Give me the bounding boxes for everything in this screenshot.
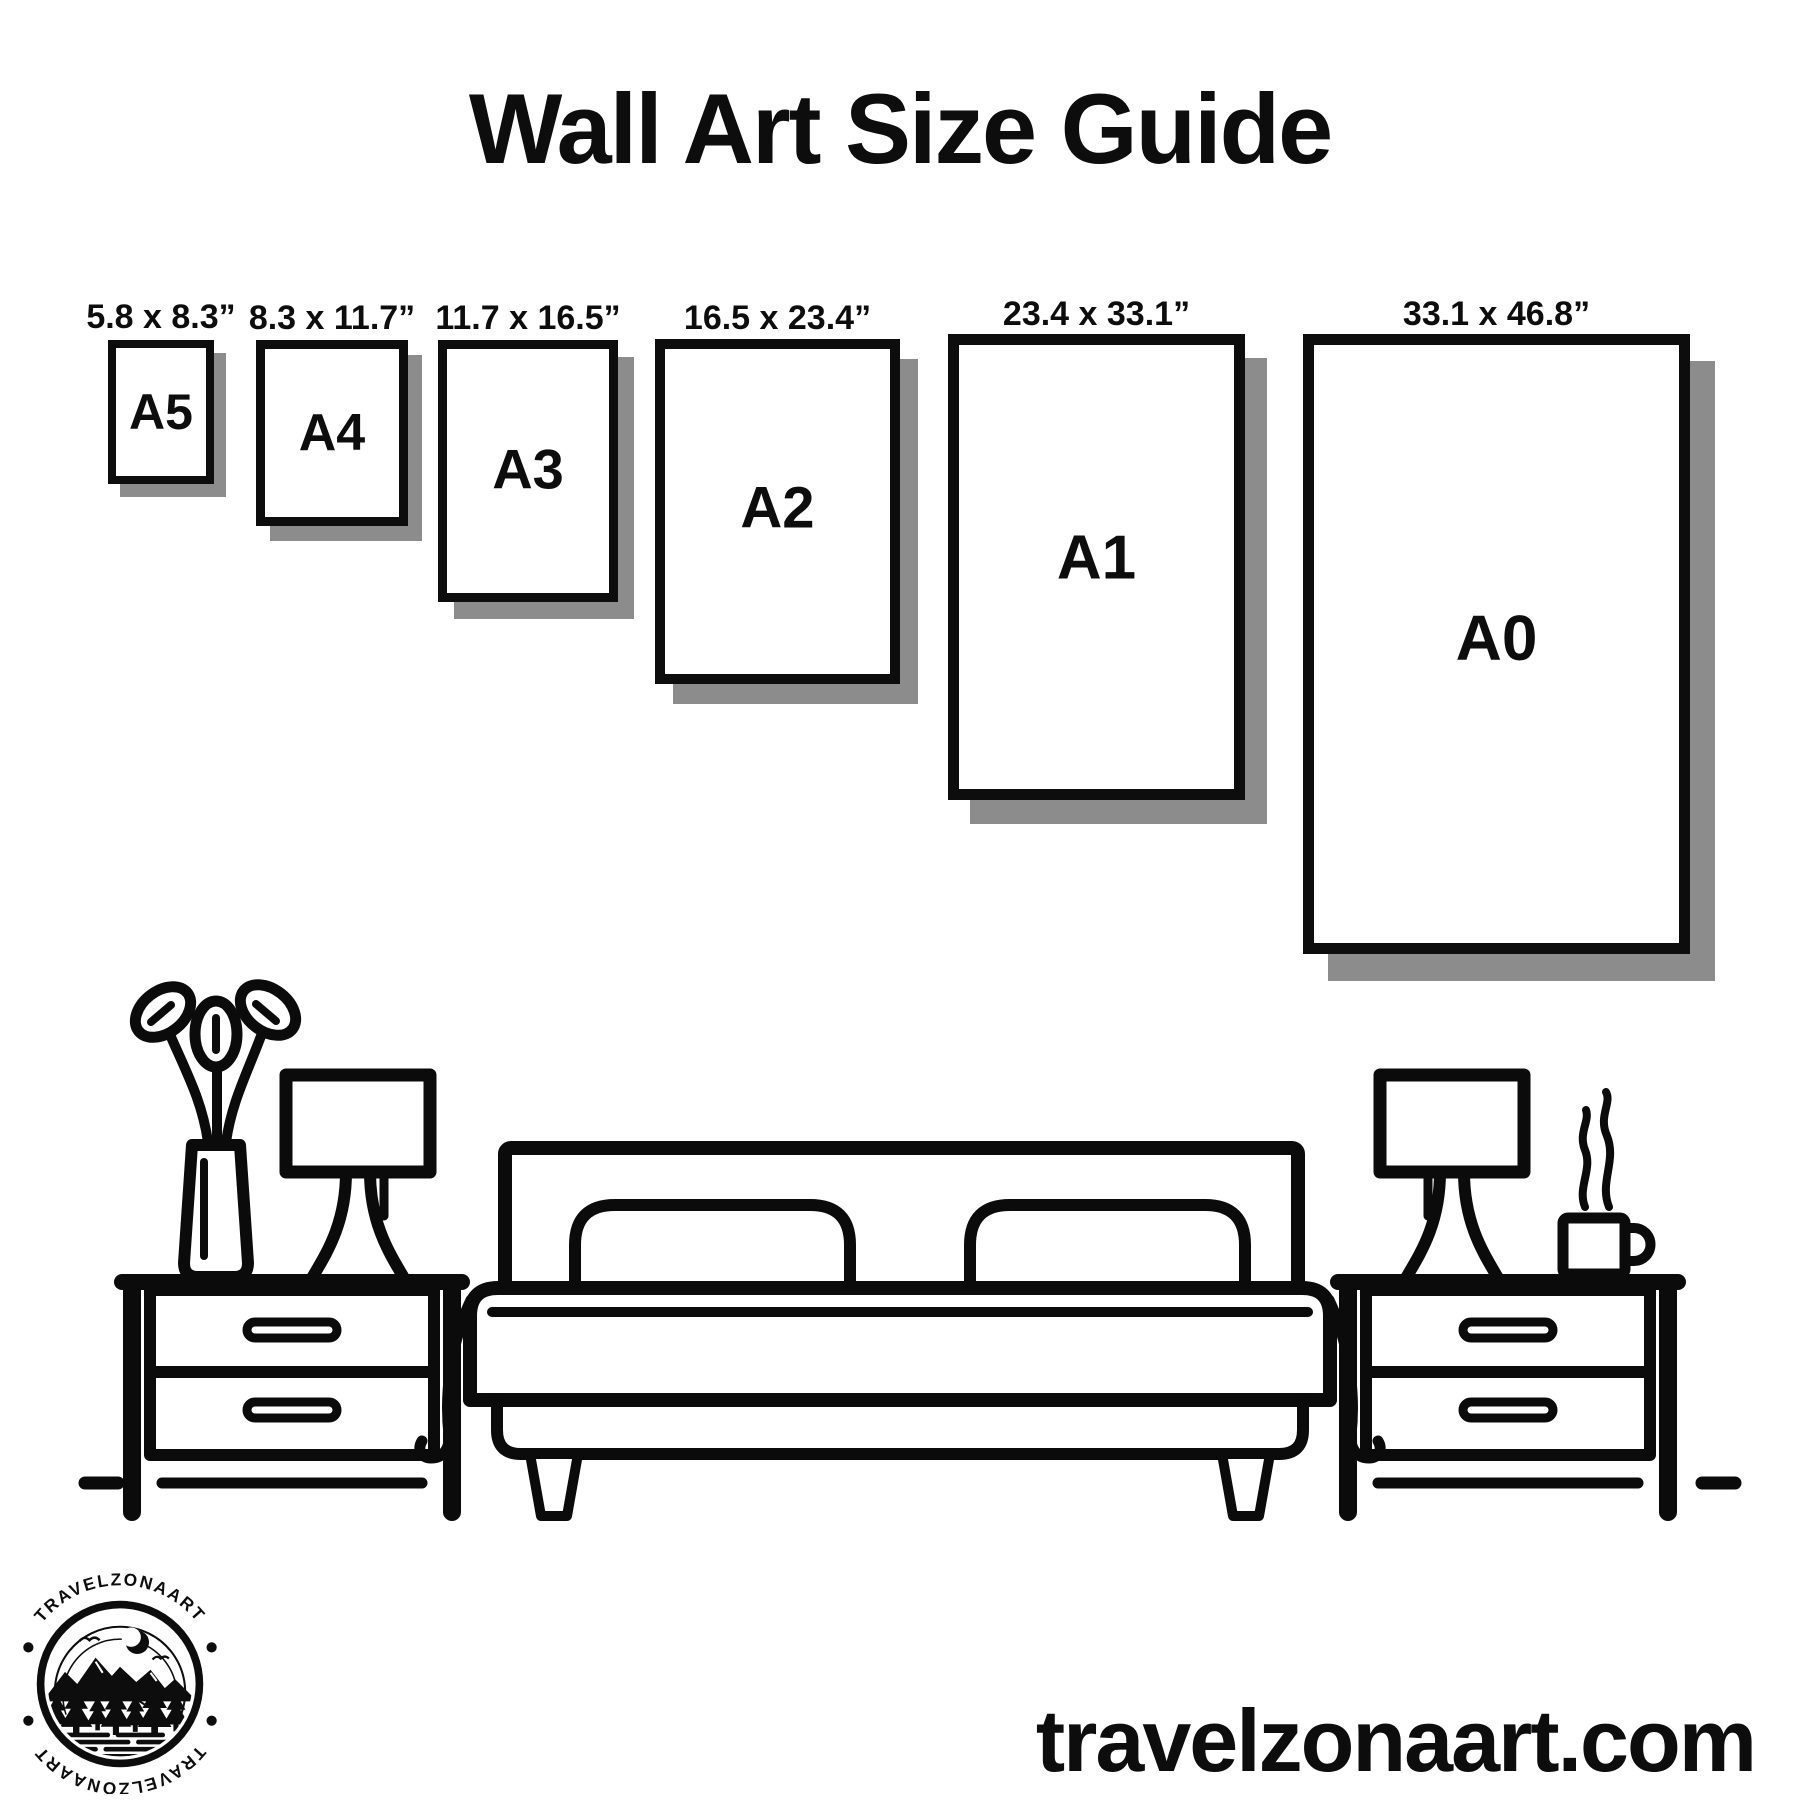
size-dimensions-label: 23.4 x 33.1”: [1003, 295, 1190, 334]
mug-body: [1563, 1218, 1625, 1274]
size-frame-a3: 11.7 x 16.5” A3: [438, 340, 618, 602]
size-dimensions-label: 16.5 x 23.4”: [684, 299, 871, 338]
nightstand-icon: [1338, 1282, 1678, 1512]
size-dimensions-label: 5.8 x 8.3”: [86, 298, 235, 337]
size-dimensions-label: 33.1 x 46.8”: [1403, 295, 1590, 334]
coffee-mug-icon: [1540, 1092, 1662, 1284]
steam-icon: [1583, 1110, 1588, 1207]
bed-leg: [1222, 1454, 1270, 1516]
table-lamp-icon: [286, 1075, 430, 1278]
size-frame-a4: 8.3 x 11.7” A4: [256, 340, 408, 526]
drawer-handle: [1463, 1402, 1553, 1418]
website-url: travelzonaart.com: [1036, 1690, 1755, 1792]
size-code-label: A4: [265, 403, 399, 463]
nightstand-icon: [122, 1282, 462, 1512]
size-dimensions-label: 11.7 x 16.5”: [435, 299, 620, 338]
logo-arc-text-top: TRAVELZONAART: [30, 1570, 210, 1626]
drawer-handle: [1463, 1322, 1553, 1338]
size-frame-a2: 16.5 x 23.4” A2: [655, 339, 900, 684]
bed-leg: [530, 1454, 578, 1516]
pillow-icon: [575, 1205, 850, 1290]
size-dimensions-label: 8.3 x 11.7”: [249, 299, 415, 338]
bird-icon: [79, 1638, 99, 1642]
bed-base: [497, 1400, 1303, 1454]
brand-logo: TRAVELZONAART TRAVELZONAART: [8, 1570, 232, 1794]
steam-icon: [1604, 1092, 1610, 1207]
size-code-label: A1: [959, 523, 1234, 594]
plant-icon: [126, 974, 306, 1277]
bedroom-scene: [0, 960, 1800, 1580]
size-frame-a1: 23.4 x 33.1” A1: [948, 334, 1245, 800]
lamp-stem: [1464, 1172, 1498, 1278]
drawer-handle: [247, 1402, 337, 1418]
lamp-shade: [1380, 1075, 1524, 1172]
size-code-label: A0: [1314, 601, 1679, 675]
pillow-icon: [970, 1205, 1245, 1290]
bed-icon: [420, 1148, 1380, 1516]
lamp-stem: [312, 1172, 346, 1278]
drawer-handle: [247, 1322, 337, 1338]
page-title: Wall Art Size Guide: [0, 72, 1800, 186]
size-guide-poster: Wall Art Size Guide 5.8 x 8.3” A5 8.3 x …: [0, 0, 1800, 1800]
lamp-stem: [1406, 1172, 1440, 1278]
table-lamp-icon: [1380, 1075, 1524, 1278]
mattress: [470, 1288, 1330, 1400]
moon-cutout: [122, 1628, 141, 1647]
size-frame-a0: 33.1 x 46.8” A0: [1303, 334, 1690, 954]
size-frame-a5: 5.8 x 8.3” A5: [108, 340, 214, 484]
size-code-label: A2: [665, 475, 890, 542]
size-code-label: A5: [116, 383, 206, 441]
vase: [184, 1145, 248, 1277]
size-code-label: A3: [447, 436, 609, 501]
lamp-shade: [286, 1075, 430, 1172]
